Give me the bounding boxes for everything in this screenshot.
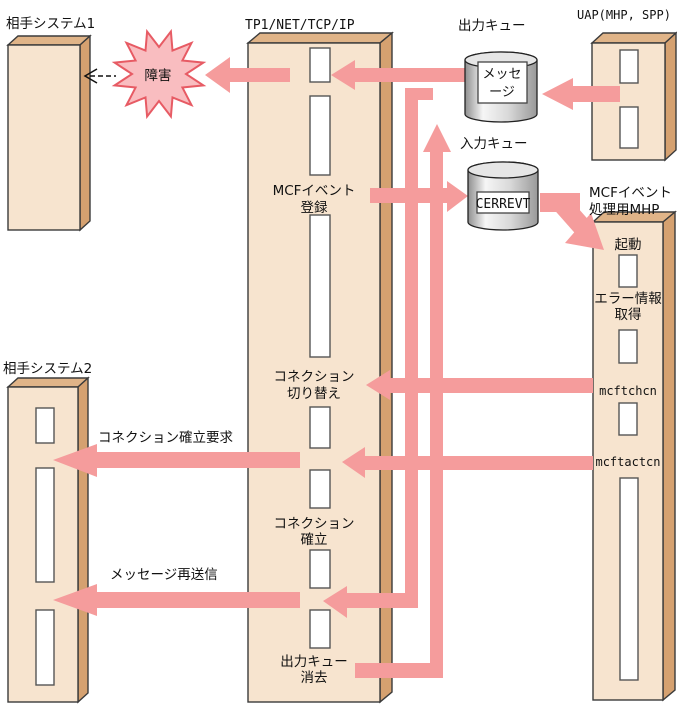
process-slot <box>310 610 330 648</box>
process-slot <box>310 48 330 82</box>
partner-system-1-box <box>8 36 90 230</box>
process-slot <box>620 107 638 148</box>
process-slot <box>36 610 54 685</box>
failure-label: 障害 <box>145 68 172 84</box>
arrow-head <box>423 124 451 152</box>
partner-system-1-title: 相手システム1 <box>6 16 95 32</box>
output-queue-cylinder: メッセ ージ <box>465 52 537 122</box>
process-slot <box>36 468 54 582</box>
box-side-face <box>78 378 88 702</box>
box-top-face <box>592 33 676 43</box>
box-front-face <box>8 45 80 230</box>
tp1-label-output-queue-delete-line1: 出力キュー <box>280 654 348 670</box>
mhp-label-mcftchcn: mcftchcn <box>599 384 657 398</box>
process-slot <box>620 50 638 83</box>
mhp-label-mcftactcn: mcftactcn <box>595 455 660 469</box>
box-top-face <box>8 36 90 45</box>
arrow-mcftchcn-to-connection-switch <box>366 370 593 400</box>
process-slot <box>310 215 330 357</box>
input-queue-cylinder: CERREVT <box>468 162 538 230</box>
process-slot <box>310 550 330 588</box>
tp1-label-connection-switch-line2: 切り替え <box>287 386 341 402</box>
box-side-face <box>665 33 676 160</box>
output-queue-title: 出力キュー <box>458 18 526 34</box>
arrow-output-queue-to-tp1 <box>331 60 465 90</box>
message-resend-label: メッセージ再送信 <box>110 567 218 583</box>
process-slot <box>36 408 54 443</box>
tp1-label-output-queue-delete-line2: 消去 <box>301 670 328 686</box>
process-slot <box>310 470 330 508</box>
connection-request-label: コネクション確立要求 <box>98 430 233 446</box>
message-label-line1: メッセ <box>482 67 521 82</box>
tp1-label-connection-establish-line1: コネクション <box>274 516 355 532</box>
box-top-face <box>248 33 392 43</box>
mhp-label-start: 起動 <box>615 237 642 253</box>
process-slot <box>310 407 330 448</box>
partner-system-2-title: 相手システム2 <box>3 361 92 377</box>
process-slot <box>619 403 637 435</box>
mcf-event-flow-diagram: 相手システム1 相手システム2 TP1/NET/TCP/IP UAP(MHP, … <box>0 0 677 709</box>
process-slot <box>620 478 638 680</box>
tp1-label-connection-establish-line2: 確立 <box>301 532 328 548</box>
box-side-face <box>663 212 675 700</box>
process-slot <box>310 96 330 175</box>
arrow-segment <box>355 663 443 678</box>
mhp-title-line2: 処理用MHP <box>589 202 659 218</box>
cerrevt-label: CERREVT <box>476 197 531 212</box>
mhp-label-error-info-line1: エラー情報 <box>594 291 662 307</box>
tp1-label-mcf-event-register-line1: MCFイベント <box>273 183 356 199</box>
uap-title: UAP(MHP, SPP) <box>577 8 671 22</box>
message-label-line2: ージ <box>489 85 515 100</box>
mhp-title-line1: MCFイベント <box>589 185 672 201</box>
tp1-label-mcf-event-register-line2: 登録 <box>301 200 328 216</box>
arrow-segment <box>430 150 443 678</box>
cylinder-top <box>468 162 538 178</box>
process-slot <box>619 255 637 287</box>
box-top-face <box>8 378 88 387</box>
tp1-label-connection-switch-line1: コネクション <box>274 369 355 385</box>
box-side-face <box>80 36 90 230</box>
mhp-label-error-info-line2: 取得 <box>615 306 642 323</box>
input-queue-title: 入力キュー <box>460 136 528 152</box>
arrow-segment <box>405 88 418 608</box>
tp1-title: TP1/NET/TCP/IP <box>245 18 355 33</box>
process-slot <box>619 330 637 363</box>
